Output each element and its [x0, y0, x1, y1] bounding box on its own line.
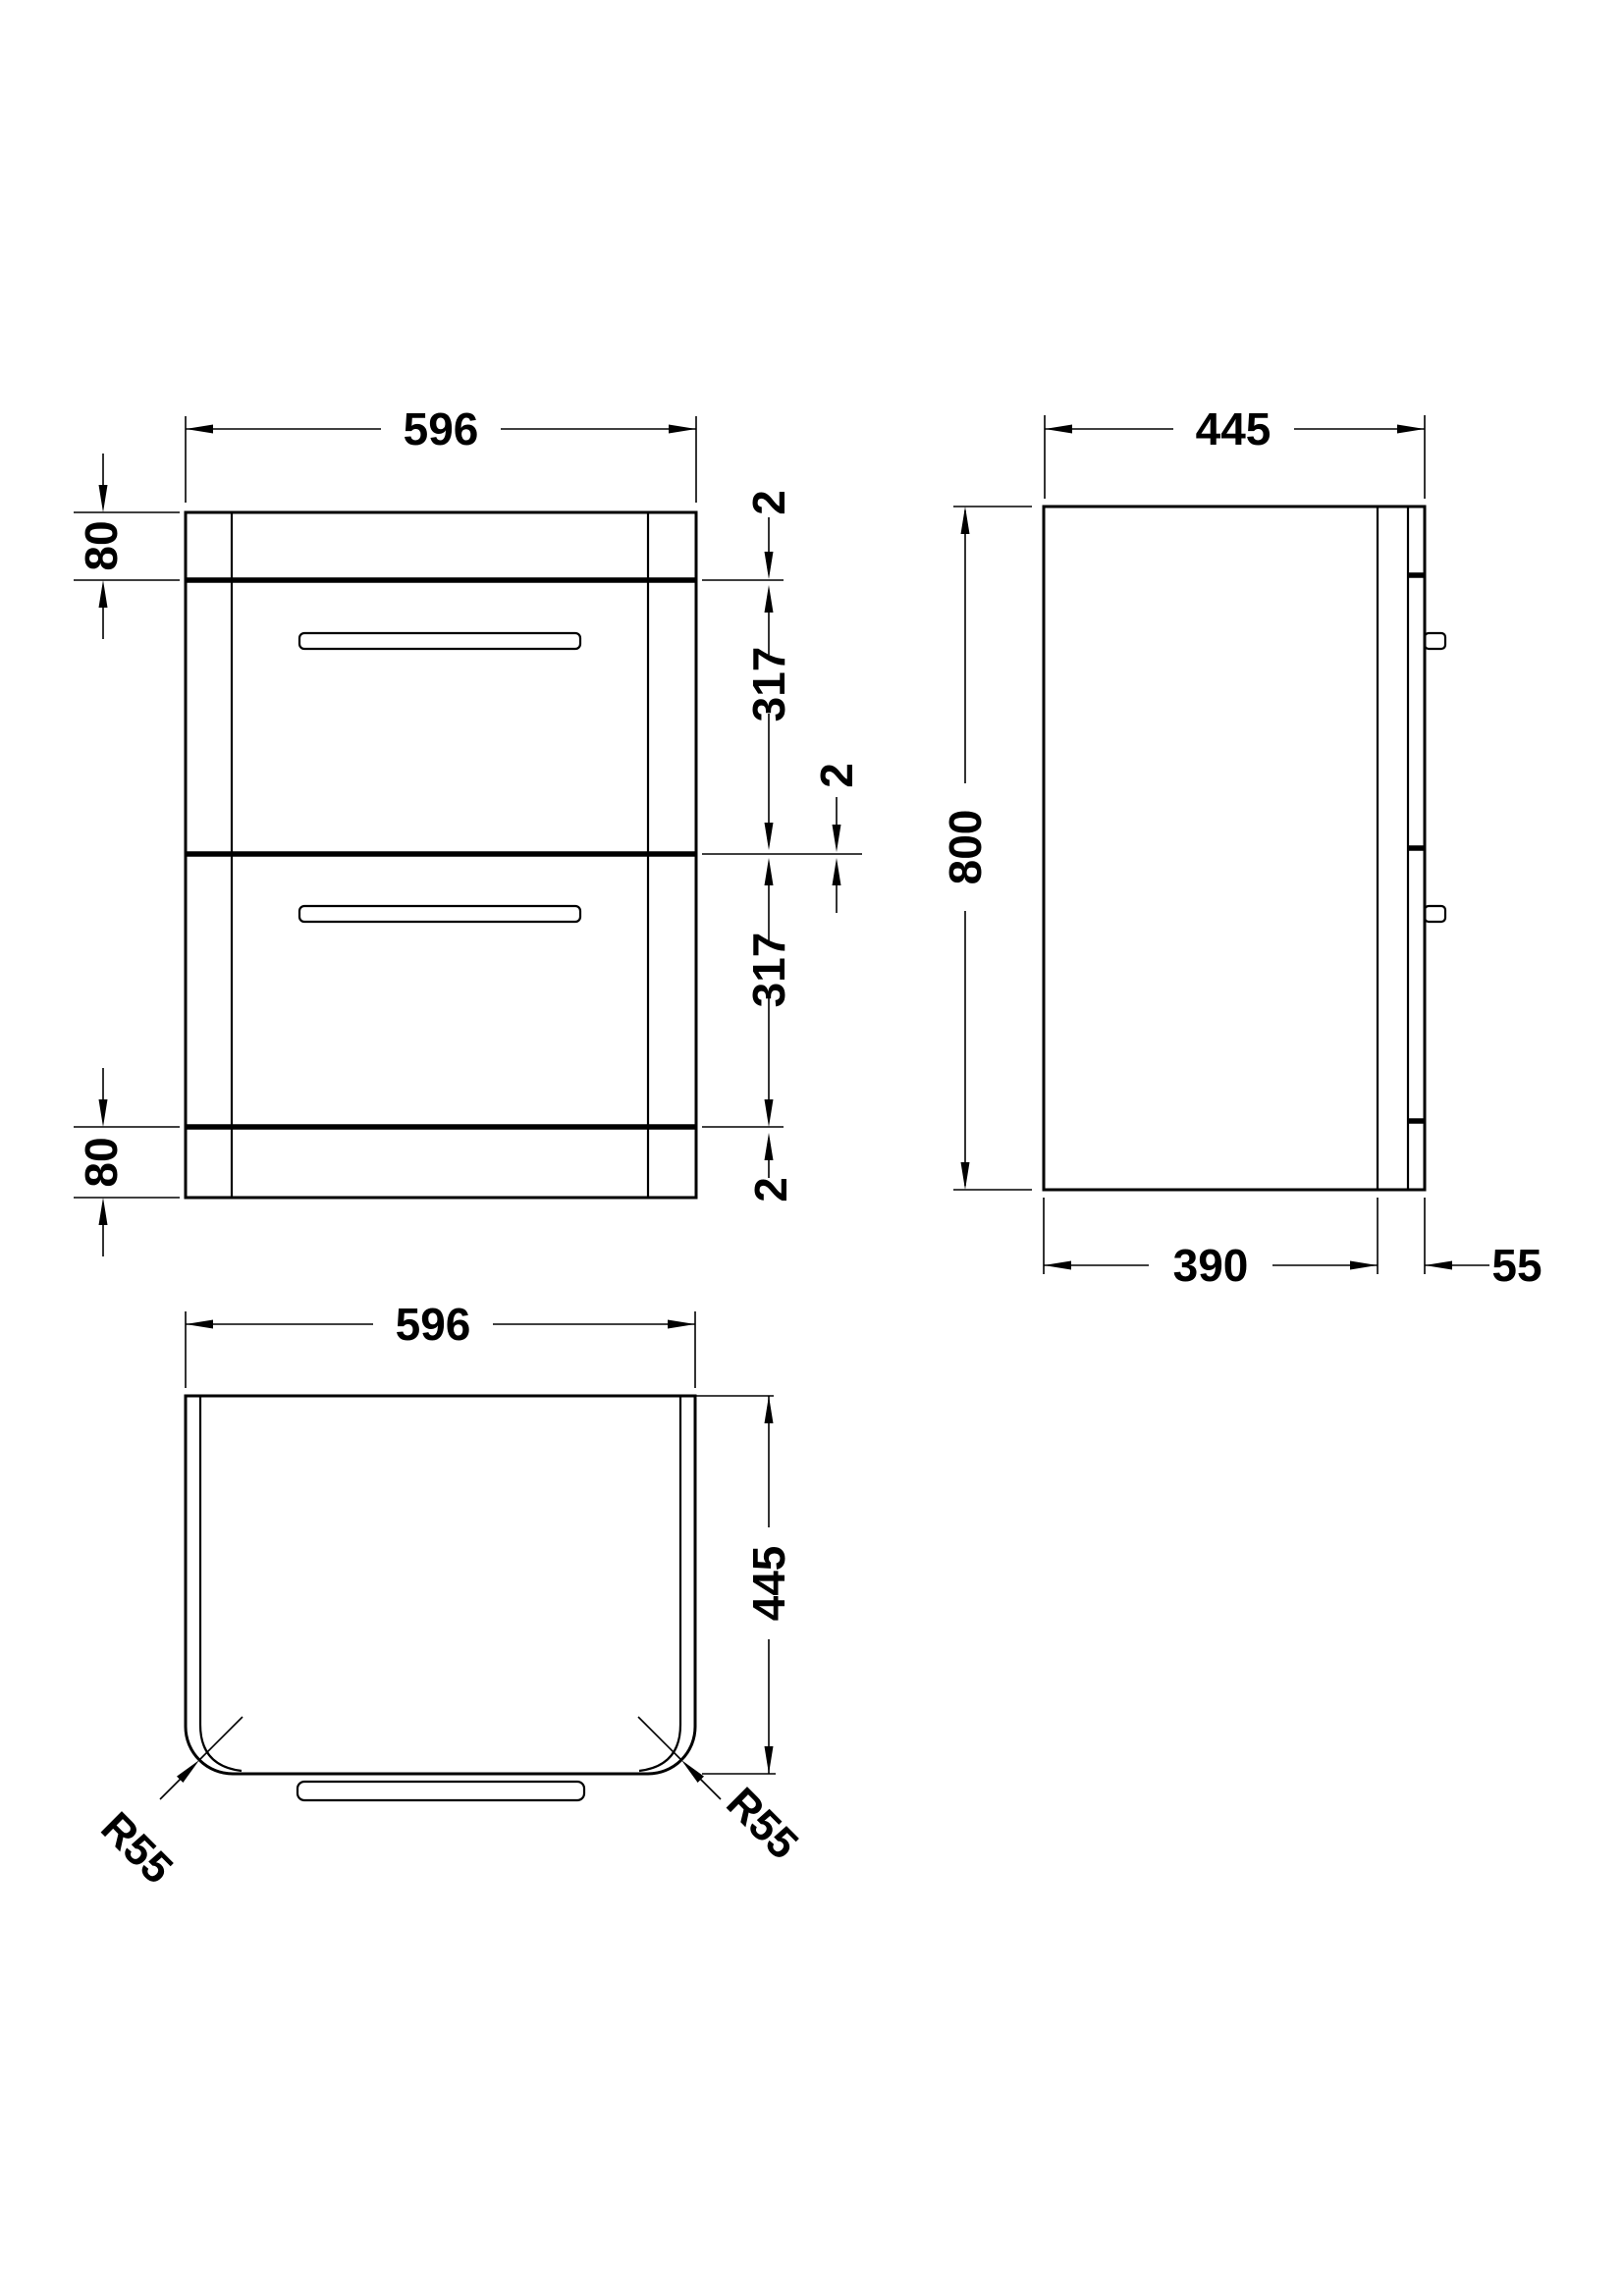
dim-label-front-projection: 55	[1491, 1240, 1542, 1291]
arrow-up-icon	[765, 858, 774, 885]
arrow-up-icon	[765, 585, 774, 613]
dim-label-bottom-rail: 80	[76, 1137, 127, 1187]
arrow-left-icon	[186, 1320, 213, 1329]
arrow-up-icon	[99, 1198, 108, 1225]
front-view: 596 80 80	[74, 403, 862, 1256]
arrow-down-icon	[765, 1099, 774, 1127]
dim-label-top-rail: 80	[76, 520, 127, 570]
front-bottom-rail-dimension: 80	[74, 1068, 180, 1256]
radius-label-left: R55	[91, 1803, 182, 1894]
dim-label-front-width: 596	[404, 403, 479, 454]
dim-label-drawer2: 317	[743, 933, 794, 1008]
arrow-right-icon	[669, 425, 696, 434]
arrow-up-icon	[833, 858, 841, 885]
side-bottom-dimension-chain: 390 55	[1044, 1198, 1542, 1291]
arrow-up-right-icon	[177, 1760, 199, 1783]
arrow-up-icon	[961, 507, 970, 534]
radius-label-right: R55	[717, 1779, 807, 1869]
arrow-left-icon	[186, 425, 213, 434]
arrow-down-icon	[833, 825, 841, 852]
arrow-down-icon	[765, 552, 774, 579]
plan-radius-right-callout: R55	[638, 1717, 807, 1869]
dim-label-plan-depth: 445	[743, 1546, 794, 1622]
dim-label-carcass-depth: 390	[1173, 1240, 1249, 1291]
drawer-handle-1	[299, 633, 580, 649]
side-cabinet-outline	[1044, 507, 1425, 1190]
front-right-dimension-chain: 2 317 2 317 2	[702, 490, 862, 1202]
drawing-page: 596 80 80	[0, 0, 1623, 2296]
plan-cabinet-outline	[186, 1396, 695, 1774]
dim-label-gap-middle: 2	[811, 763, 862, 788]
dim-label-plan-width: 596	[396, 1299, 471, 1350]
arrow-up-icon	[99, 580, 108, 608]
dim-label-drawer1: 317	[743, 647, 794, 722]
side-handle-profile-1	[1425, 633, 1445, 649]
front-width-dimension: 596	[186, 403, 696, 503]
plan-left-panel-line	[200, 1396, 242, 1771]
dim-label-gap-bottom: 2	[745, 1177, 796, 1202]
dim-label-side-height: 800	[940, 810, 991, 885]
side-view: 445 800 390 55	[940, 403, 1542, 1291]
arrow-right-icon	[1397, 425, 1425, 434]
plan-handle-bar	[298, 1782, 584, 1800]
arrow-down-icon	[99, 485, 108, 512]
side-handle-profile-2	[1425, 906, 1445, 922]
arrow-left-icon	[1425, 1261, 1452, 1270]
drawer-handle-2	[299, 906, 580, 922]
arrow-up-icon	[765, 1396, 774, 1423]
arrow-up-left-icon	[681, 1760, 704, 1783]
side-height-dimension: 800	[940, 507, 1032, 1190]
side-depth-dimension: 445	[1045, 403, 1425, 499]
dim-label-gap-top: 2	[743, 490, 794, 515]
arrow-down-icon	[961, 1162, 970, 1190]
plan-right-panel-line	[639, 1396, 680, 1771]
arrow-down-icon	[765, 1746, 774, 1774]
technical-drawing: 596 80 80	[0, 0, 1623, 2296]
arrow-right-icon	[668, 1320, 695, 1329]
plan-depth-dimension: 445	[695, 1396, 794, 1774]
plan-radius-left-callout: R55	[91, 1717, 243, 1894]
arrow-right-icon	[1350, 1261, 1378, 1270]
arrow-left-icon	[1044, 1261, 1071, 1270]
arrow-left-icon	[1045, 425, 1072, 434]
dim-label-side-depth: 445	[1196, 403, 1271, 454]
front-top-rail-dimension: 80	[74, 454, 180, 639]
arrow-down-icon	[99, 1099, 108, 1127]
arrow-down-icon	[765, 823, 774, 850]
plan-width-dimension: 596	[186, 1299, 695, 1388]
arrow-up-icon	[765, 1133, 774, 1160]
plan-view: 596 445 R55 R55	[91, 1299, 807, 1894]
